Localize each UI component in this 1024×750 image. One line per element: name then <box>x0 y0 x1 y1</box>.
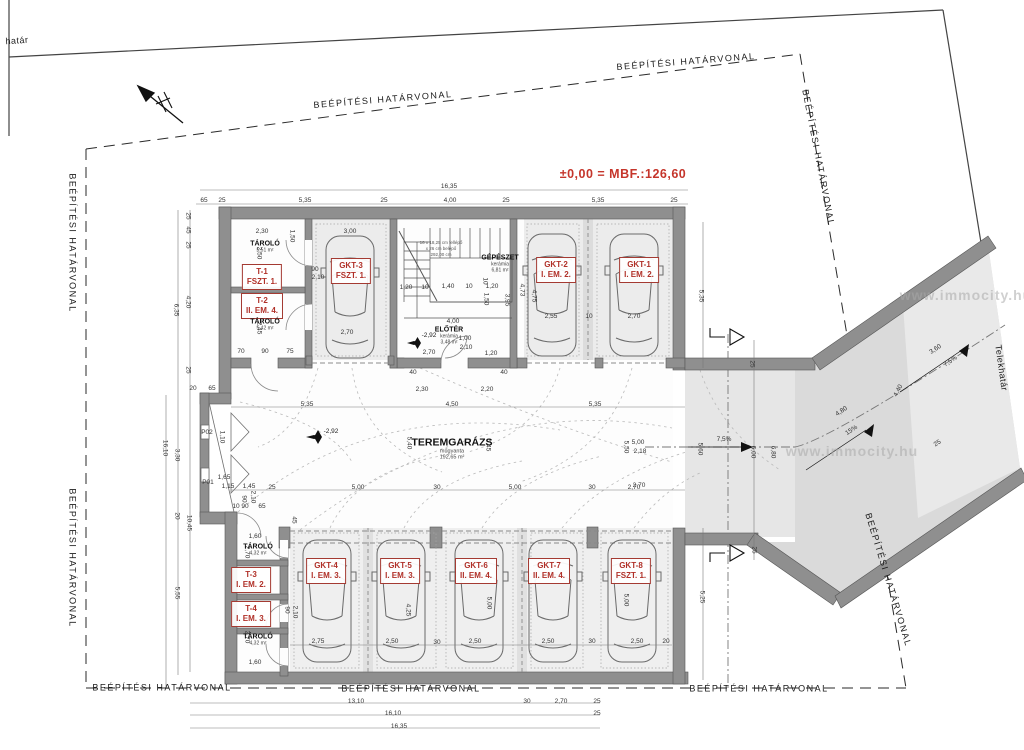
floor-fills <box>231 219 1020 672</box>
floor-plan-drawing: ±0,00 = MBF.:126,60BEÉPÍTÉSI HATÁRVONALB… <box>0 0 1024 750</box>
plan-geometry <box>0 0 1024 750</box>
north-arrow-icon <box>138 86 183 123</box>
